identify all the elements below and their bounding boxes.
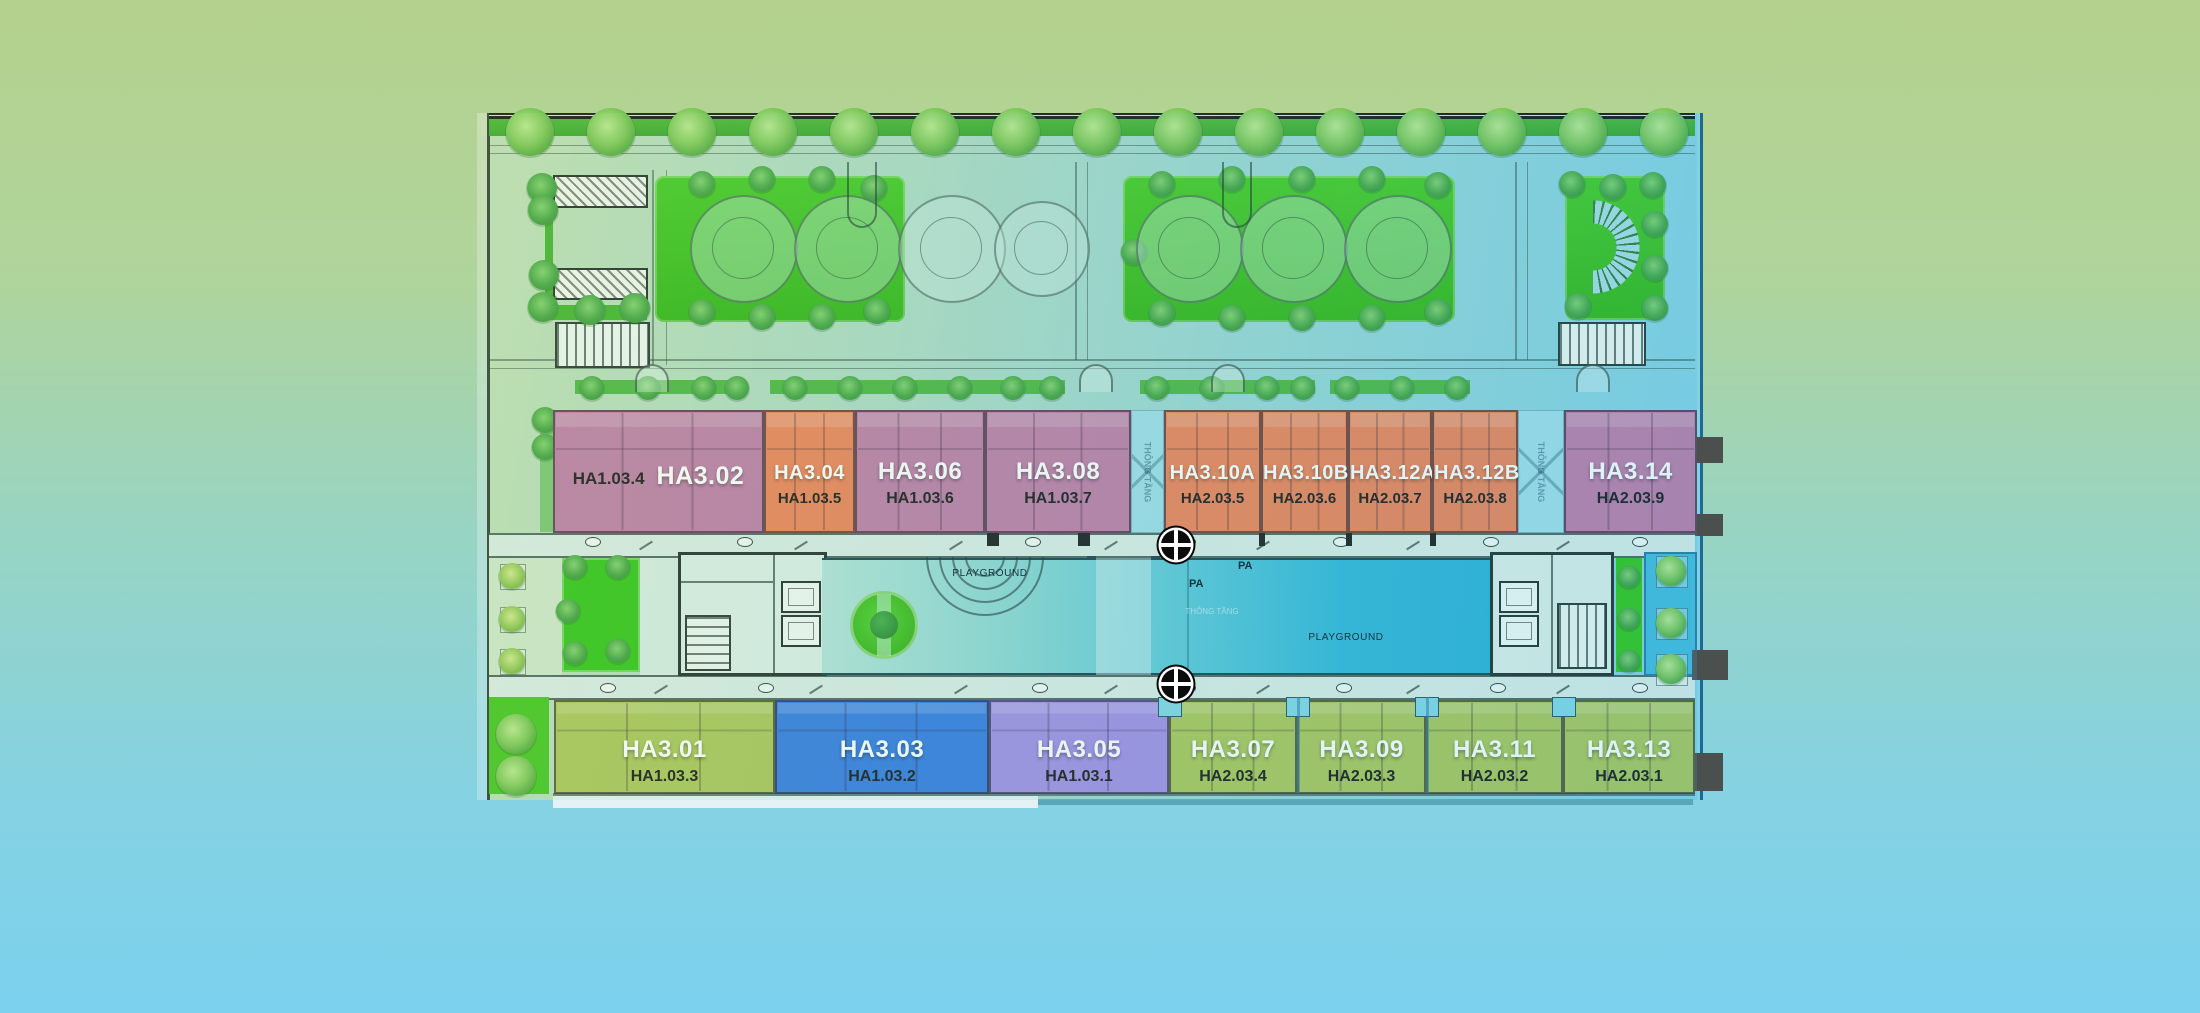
unit-name-label: HA3.04 bbox=[766, 462, 853, 485]
path-line bbox=[1515, 162, 1517, 360]
path-line bbox=[652, 170, 654, 365]
stairs bbox=[685, 615, 731, 671]
unit-region[interactable]: HA3.10A HA2.03.5 bbox=[1164, 410, 1261, 533]
grass-strip bbox=[545, 185, 553, 320]
pa-label: PA bbox=[1238, 560, 1252, 572]
pergola bbox=[553, 175, 648, 208]
site-plan-canvas: HA1.03.4 HA3.02 HA3.04 HA1.03.5 HA3.06 H… bbox=[0, 0, 2200, 1013]
unit-labels: HA1.03.4 HA3.02 bbox=[555, 462, 762, 491]
unit-name-label: HA3.10A bbox=[1166, 462, 1259, 485]
path-line bbox=[489, 145, 1695, 146]
unit-sub-label: HA2.03.5 bbox=[1166, 490, 1259, 507]
unit-name-label: HA3.12A bbox=[1350, 462, 1430, 485]
garden-bed bbox=[655, 176, 905, 322]
pergola bbox=[553, 268, 648, 300]
unit-sub-label: HA2.03.7 bbox=[1350, 490, 1430, 507]
unit-name-label: HA3.08 bbox=[987, 458, 1129, 486]
grass-strip bbox=[489, 119, 1695, 136]
tree-circle-island bbox=[850, 591, 918, 659]
unit-sub-label: HA1.03.1 bbox=[991, 768, 1167, 786]
balcony bbox=[1695, 437, 1723, 463]
walkway bbox=[489, 558, 562, 675]
lawn-square bbox=[562, 558, 640, 672]
unit-sub-label: HA1.03.2 bbox=[777, 768, 987, 786]
pa-label: PA bbox=[1189, 578, 1203, 590]
unit-sub-label: HA2.03.3 bbox=[1299, 768, 1424, 786]
unit-sub-label: HA2.03.2 bbox=[1428, 768, 1561, 786]
unit-region[interactable]: HA3.10B HA2.03.6 bbox=[1261, 410, 1348, 533]
unit-sub-label: HA2.03.9 bbox=[1566, 490, 1695, 508]
void-gap: THÔNG TẦNG bbox=[1518, 410, 1564, 533]
unit-region[interactable]: HA3.01 HA1.03.3 bbox=[554, 700, 775, 794]
core-wall bbox=[773, 555, 775, 673]
path-line bbox=[1087, 162, 1088, 360]
stairs bbox=[1558, 322, 1646, 366]
elevator bbox=[1499, 581, 1539, 613]
walkway bbox=[640, 558, 680, 675]
void-label: THÔNG TẦNG bbox=[1143, 441, 1153, 502]
corridor bbox=[489, 675, 1695, 700]
unit-name-label: HA3.13 bbox=[1565, 736, 1693, 764]
unit-name-label: HA3.06 bbox=[857, 458, 983, 486]
playground-label: PLAYGROUND bbox=[1308, 632, 1383, 643]
unit-name-label: HA3.01 bbox=[556, 736, 773, 764]
grass-strip bbox=[1616, 558, 1642, 672]
unit-sub-label: HA2.03.1 bbox=[1565, 768, 1693, 786]
unit-name-label: HA3.02 bbox=[657, 462, 745, 491]
elevator bbox=[781, 615, 821, 647]
unit-sub-label: HA1.03.3 bbox=[556, 768, 773, 786]
elevator bbox=[1499, 615, 1539, 647]
balcony bbox=[1695, 753, 1723, 791]
stairs bbox=[555, 322, 650, 368]
void-watermark: THÔNG TẦNG bbox=[1185, 607, 1238, 616]
unit-region[interactable]: HA3.12A HA2.03.7 bbox=[1348, 410, 1432, 533]
path-line bbox=[489, 368, 1695, 369]
grass-strip bbox=[545, 305, 647, 320]
unit-region[interactable]: HA3.09 HA2.03.3 bbox=[1297, 700, 1426, 794]
unit-region[interactable]: HA1.03.4 HA3.02 bbox=[553, 410, 764, 533]
unit-name-label: HA3.11 bbox=[1428, 736, 1561, 764]
core-wall bbox=[1551, 555, 1553, 673]
path-line bbox=[1527, 162, 1528, 360]
unit-name-label: HA3.07 bbox=[1171, 736, 1295, 764]
grass-strip bbox=[489, 697, 549, 794]
unit-sub-label: HA1.03.6 bbox=[857, 490, 983, 508]
unit-sub-label: HA1.03.7 bbox=[987, 490, 1129, 508]
void-label: THÔNG TẦNG bbox=[1536, 441, 1546, 502]
playground-label: PLAYGROUND bbox=[952, 568, 1027, 579]
unit-name-label: HA3.12B bbox=[1434, 462, 1516, 485]
core-wall bbox=[681, 581, 773, 583]
unit-region[interactable]: HA3.05 HA1.03.1 bbox=[989, 700, 1169, 794]
unit-region[interactable]: HA3.04 HA1.03.5 bbox=[764, 410, 855, 533]
path-line bbox=[1075, 162, 1077, 360]
unit-sub-label: HA2.03.8 bbox=[1434, 490, 1516, 507]
planter-strip bbox=[1644, 552, 1697, 676]
bridge-deck bbox=[1096, 558, 1151, 675]
unit-name-label: HA3.14 bbox=[1566, 458, 1695, 486]
pool bbox=[822, 558, 1490, 675]
pool-divider bbox=[1187, 558, 1189, 675]
unit-region[interactable]: HA3.14 HA2.03.9 bbox=[1564, 410, 1697, 533]
unit-sub-label: HA1.03.4 bbox=[573, 469, 645, 489]
survey-marker-icon bbox=[1161, 669, 1191, 699]
grass-strip bbox=[540, 410, 553, 532]
unit-sub-label: HA2.03.4 bbox=[1171, 768, 1295, 786]
unit-region[interactable]: HA3.07 HA2.03.4 bbox=[1169, 700, 1297, 794]
unit-name-label: HA3.09 bbox=[1299, 736, 1424, 764]
garden-bed bbox=[1123, 176, 1455, 322]
unit-region[interactable]: HA3.08 HA1.03.7 bbox=[985, 410, 1131, 533]
unit-region[interactable]: HA3.03 HA1.03.2 bbox=[775, 700, 989, 794]
unit-region[interactable]: HA3.13 HA2.03.1 bbox=[1563, 700, 1695, 794]
elevator bbox=[781, 581, 821, 613]
elevator-core bbox=[1490, 552, 1614, 676]
elevator-core bbox=[678, 552, 827, 676]
plinth bbox=[553, 796, 1038, 808]
unit-name-label: HA3.10B bbox=[1263, 462, 1346, 485]
unit-sub-label: HA2.03.6 bbox=[1263, 490, 1346, 507]
void-gap: THÔNG TẦNG bbox=[1131, 410, 1164, 533]
unit-sub-label: HA1.03.5 bbox=[766, 490, 853, 507]
unit-region[interactable]: HA3.12B HA2.03.8 bbox=[1432, 410, 1518, 533]
path-line bbox=[489, 153, 1695, 154]
unit-name-label: HA3.05 bbox=[991, 736, 1167, 764]
plinth bbox=[1038, 799, 1693, 805]
unit-region[interactable]: HA3.11 HA2.03.2 bbox=[1426, 700, 1563, 794]
balcony bbox=[1692, 650, 1728, 680]
balcony bbox=[1695, 514, 1723, 536]
unit-name-label: HA3.03 bbox=[777, 736, 987, 764]
unit-region[interactable]: HA3.06 HA1.03.6 bbox=[855, 410, 985, 533]
survey-marker-icon bbox=[1161, 530, 1191, 560]
stairs bbox=[1557, 603, 1607, 669]
